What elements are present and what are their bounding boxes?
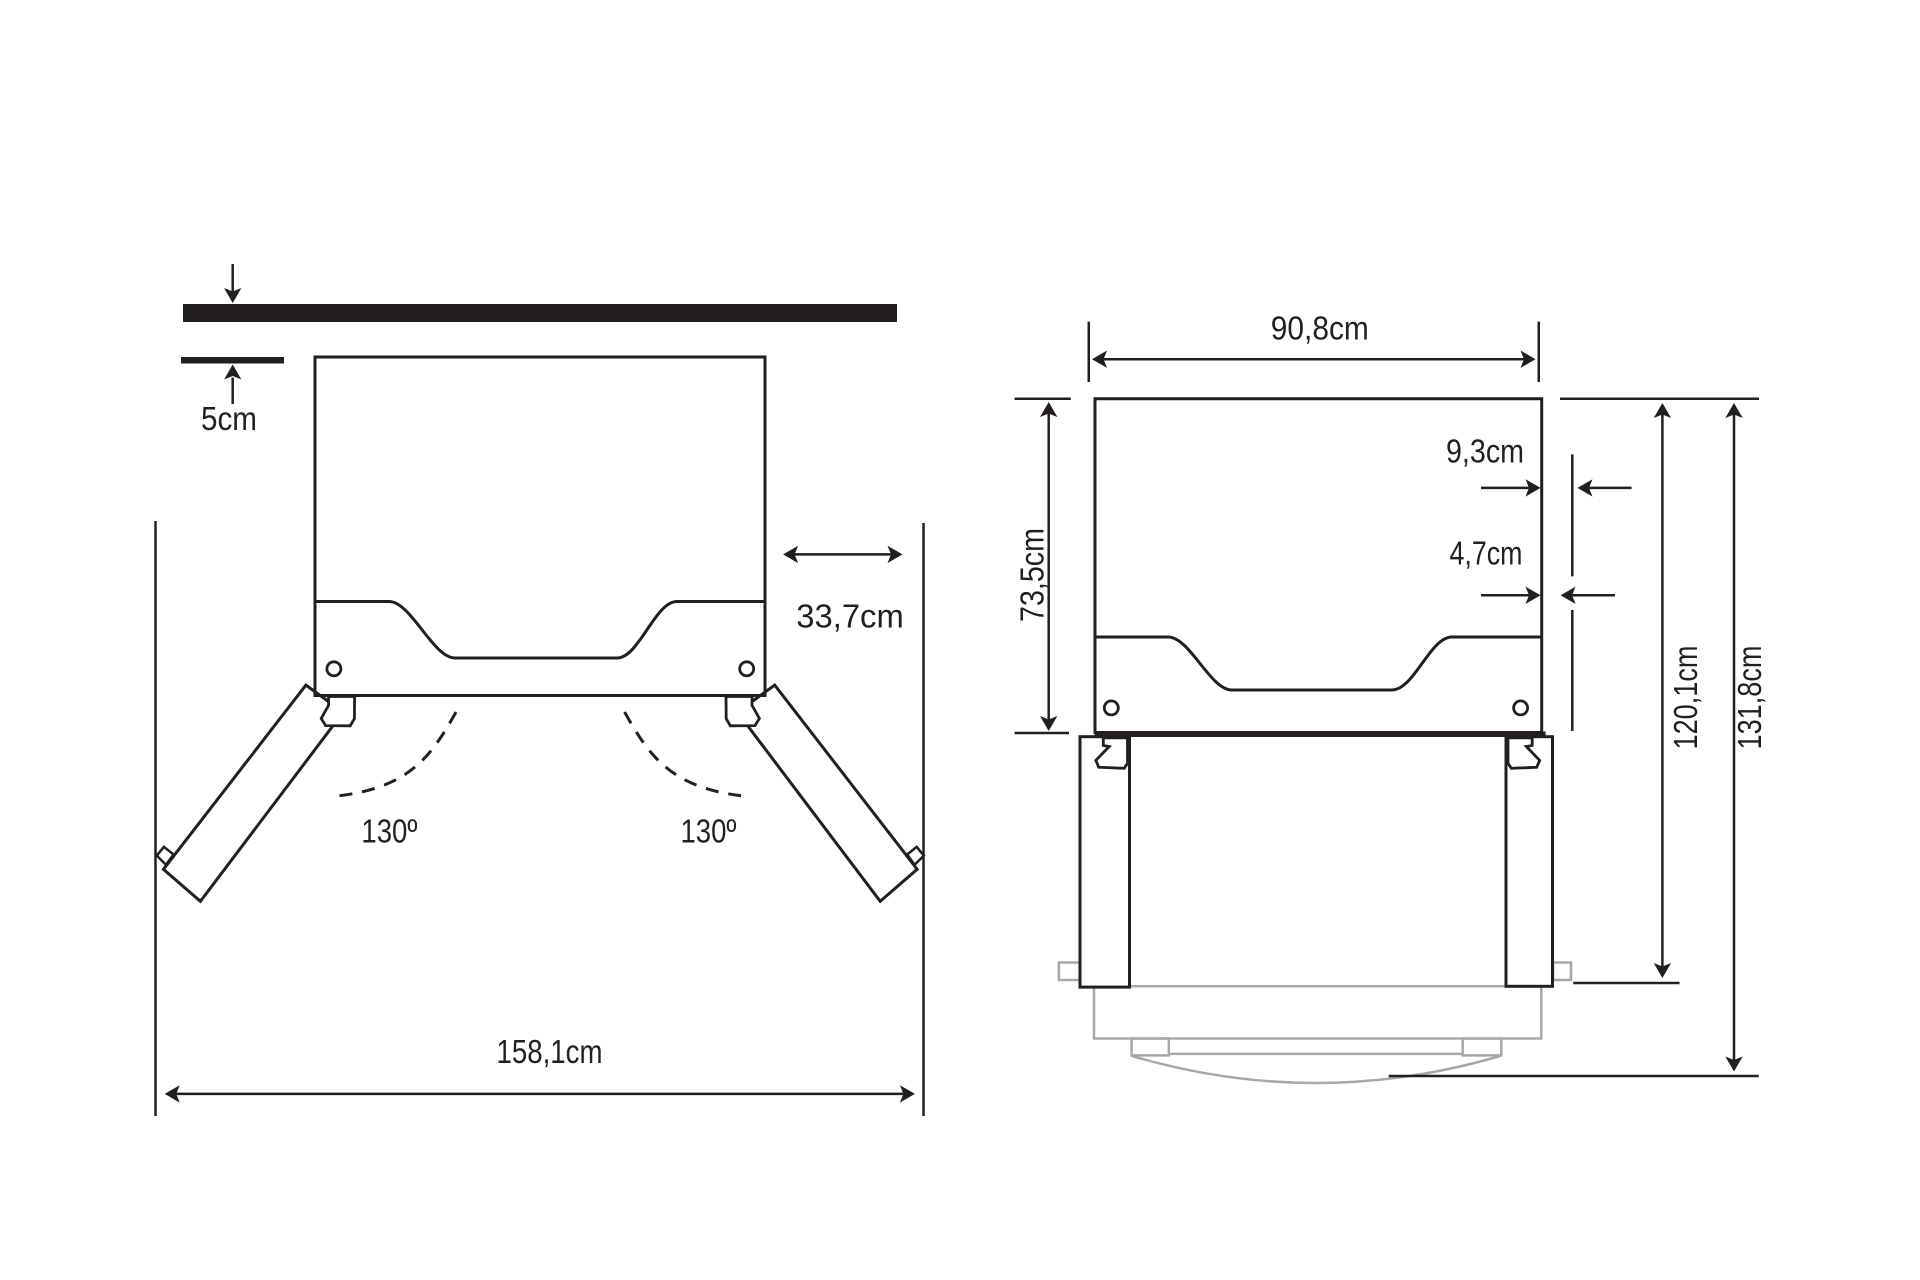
svg-text:158,1cm: 158,1cm <box>497 1033 603 1070</box>
svg-text:73,5cm: 73,5cm <box>1014 528 1051 622</box>
svg-text:90,8cm: 90,8cm <box>1271 309 1369 346</box>
svg-text:5cm: 5cm <box>201 400 257 437</box>
svg-text:4,7cm: 4,7cm <box>1450 534 1523 571</box>
svg-text:120,1cm: 120,1cm <box>1667 646 1704 750</box>
svg-text:9,3cm: 9,3cm <box>1446 433 1524 470</box>
svg-text:130º: 130º <box>361 813 417 850</box>
svg-text:130º: 130º <box>681 813 737 850</box>
svg-text:33,7cm: 33,7cm <box>796 598 904 635</box>
svg-text:131,8cm: 131,8cm <box>1731 646 1768 750</box>
